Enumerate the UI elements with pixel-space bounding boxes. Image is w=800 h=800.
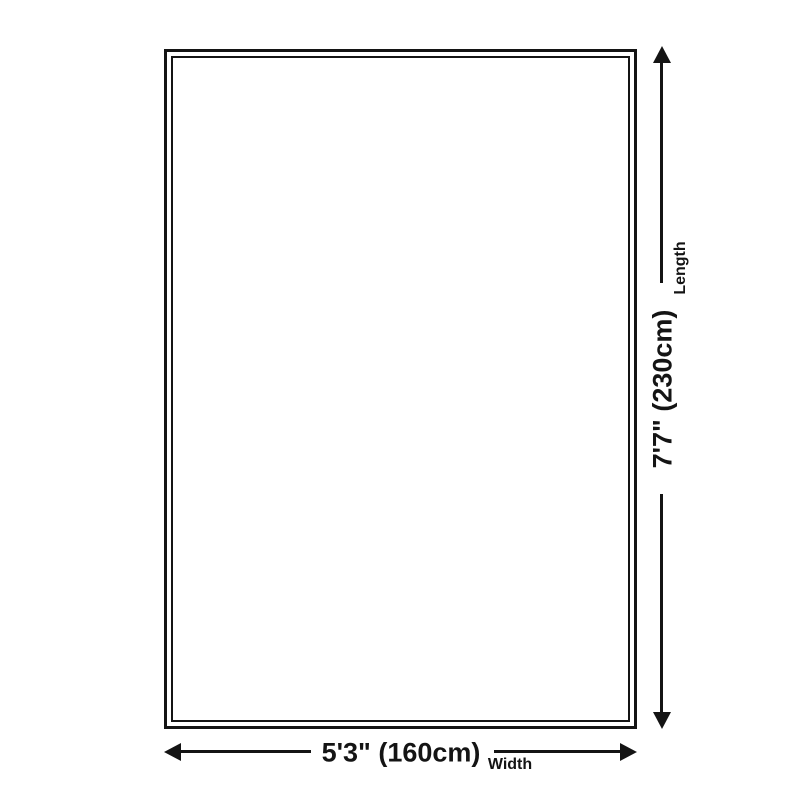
arrow-right-icon (620, 743, 637, 761)
length-value: 7'7" (230cm) (650, 310, 677, 469)
arrow-down-icon (653, 712, 671, 729)
length-dimension-line-bottom (660, 494, 663, 714)
rug-outline (164, 49, 637, 729)
length-dimension-line-top (660, 61, 663, 283)
rug-inner-border (171, 56, 630, 722)
width-axis-label: Width (488, 757, 532, 773)
dimension-diagram: Length 7'7" (230cm) 5'3" (160cm) Width (0, 0, 800, 800)
length-axis-label: Length (673, 241, 689, 294)
width-dimension-line-left (179, 750, 311, 753)
width-dimension-line-right (494, 750, 621, 753)
width-value: 5'3" (160cm) (322, 740, 481, 767)
